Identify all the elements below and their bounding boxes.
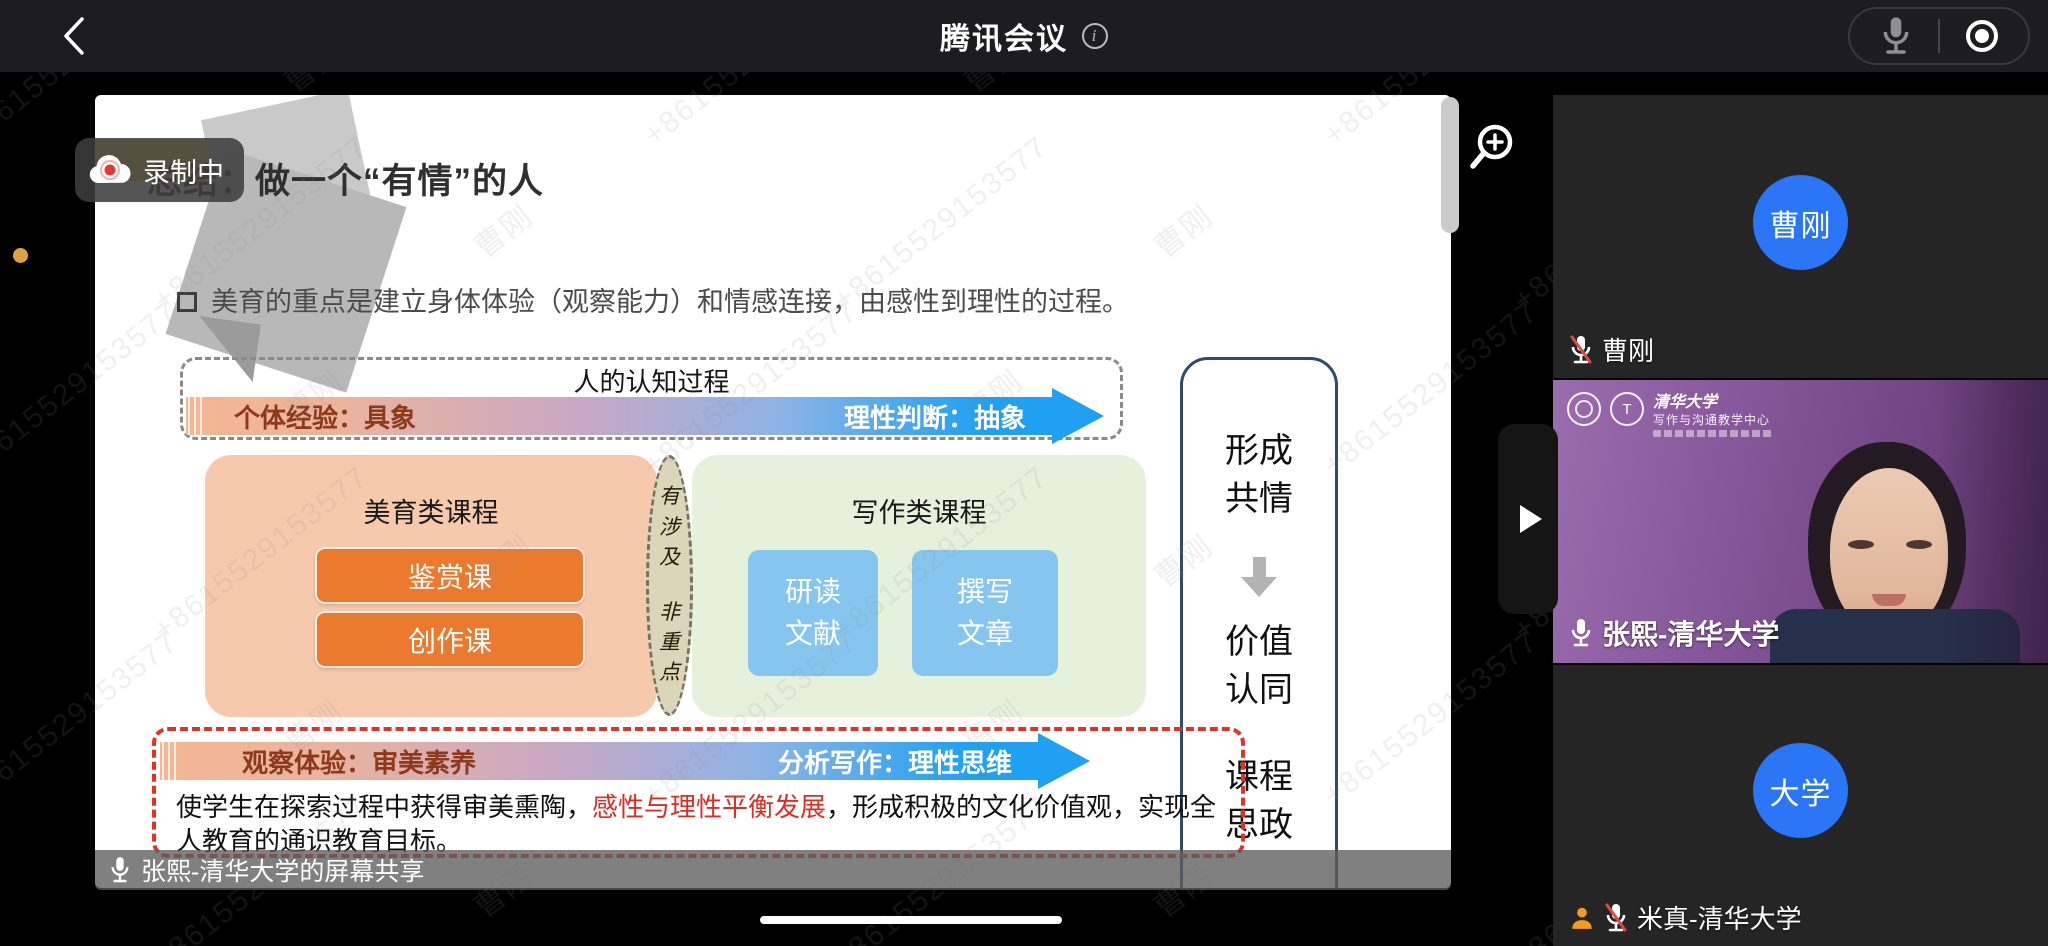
aesthetic-courses-panel: 美育类课程 鉴赏课 创作课	[205, 455, 657, 717]
oval-bottom-text: 非重点	[658, 598, 682, 689]
summary-right-label: 分析写作：理性思维	[778, 743, 1012, 780]
screen-share-label: 张熙-清华大学的屏幕共享	[141, 852, 424, 888]
muted-mic-icon	[1604, 903, 1628, 933]
play-arrow-icon	[1520, 505, 1542, 533]
outcome-values: 价值 认同	[1225, 619, 1293, 714]
participant-name: 张熙-清华大学	[1602, 613, 1779, 653]
top-bar: 腾讯会议 i	[0, 0, 2048, 72]
avatar: 大学	[1753, 743, 1848, 838]
slide-bullet: 美育的重点是建立身体体验（观察能力）和情感连接，由感性到理性的过程。	[177, 285, 1227, 320]
slide-scrollbar[interactable]	[1441, 97, 1459, 233]
pill-divider	[1938, 19, 1940, 53]
summary-gradient-arrow: 观察体验：审美素养 分析写作：理性思维	[160, 742, 1040, 780]
zoom-in-button[interactable]	[1464, 120, 1520, 176]
microphone-icon	[109, 856, 131, 884]
write-line2: 文章	[957, 613, 1013, 655]
outcome-empathy: 形成 共情	[1225, 428, 1293, 523]
write-article-box: 撰写 文章	[912, 550, 1058, 676]
record-button[interactable]	[1966, 20, 1998, 52]
summary-box: 观察体验：审美素养 分析写作：理性思维 使学生在探索过程中获得审美熏陶，感性与理…	[152, 727, 1245, 858]
cognition-left-label: 个体经验：具象	[186, 398, 416, 435]
tencent-meeting-app: 腾讯会议 i 总结：做一个“有情”的人	[0, 0, 2048, 946]
center-logo-icon: T	[1610, 392, 1644, 426]
participant-label: 曹刚	[1569, 331, 1654, 368]
participant-label: 米真-清华大学	[1569, 899, 1802, 936]
page-scroll-indicator[interactable]	[760, 916, 1062, 924]
meeting-title-group: 腾讯会议 i	[940, 14, 1108, 58]
shared-screen-slide[interactable]: 总结：做一个“有情”的人 美育的重点是建立身体体验（观察能力）和情感连接，由感性…	[95, 95, 1451, 888]
empathy-line2: 共情	[1225, 476, 1293, 524]
creation-course-box: 创作课	[315, 611, 585, 668]
participant-tile-caogang[interactable]: 曹刚 曹刚	[1553, 95, 2048, 378]
read-line2: 文献	[785, 613, 841, 655]
empathy-line1: 形成	[1225, 428, 1293, 476]
person-shoulders	[1770, 609, 2020, 663]
meeting-title: 腾讯会议	[940, 14, 1068, 58]
bullet-text: 美育的重点是建立身体体验（观察能力）和情感连接，由感性到理性的过程。	[211, 285, 1129, 320]
cognition-right-label: 理性判断：抽象	[844, 398, 1026, 435]
microphone-button[interactable]	[1880, 16, 1912, 56]
participant-label: 张熙-清华大学	[1569, 613, 1779, 653]
summary-pre: 使学生在探索过程中获得审美熏陶，	[176, 792, 592, 822]
aesthetic-title: 美育类课程	[205, 491, 657, 530]
screen-share-bar: 张熙-清华大学的屏幕共享	[95, 850, 1451, 890]
overlap-oval: 有涉及 非重点	[646, 455, 693, 716]
cognition-title: 人的认知过程	[183, 362, 1120, 399]
topbar-controls	[1848, 7, 2030, 65]
participant-name: 米真-清华大学	[1637, 899, 1802, 936]
university-watermark: T 清华大学 写作与沟通教学中心	[1567, 392, 1773, 437]
participant-tile-zhangxi-video[interactable]: T 清华大学 写作与沟通教学中心	[1553, 380, 2048, 663]
back-button[interactable]	[52, 14, 96, 58]
bullet-square-icon	[177, 292, 197, 312]
participant-tile-mizhen[interactable]: 大学	[1553, 665, 2048, 946]
info-icon[interactable]: i	[1082, 23, 1108, 49]
recording-label: 录制中	[143, 151, 224, 190]
avatar: 曹刚	[1753, 175, 1848, 270]
recording-badge[interactable]: 录制中	[75, 138, 244, 202]
muted-mic-icon	[1569, 335, 1593, 365]
oval-top-text: 有涉及	[658, 482, 682, 573]
logo-english-line	[1653, 430, 1773, 437]
cognition-gradient-arrow: 个体经验：具象 理性判断：抽象	[186, 397, 1054, 435]
magnifier-plus-icon	[1464, 120, 1520, 176]
read-line1: 研读	[785, 571, 841, 613]
sharing-person-icon	[1569, 904, 1595, 932]
writing-courses-panel: 写作类课程 研读 文献 撰写 文章	[692, 455, 1146, 717]
chevron-left-icon	[61, 15, 87, 57]
values-line1: 价值	[1225, 619, 1293, 667]
values-line2: 认同	[1225, 667, 1293, 715]
active-mic-icon	[1569, 618, 1593, 648]
appreciation-course-box: 鉴赏课	[315, 547, 585, 604]
summary-text: 使学生在探索过程中获得审美熏陶，感性与理性平衡发展，形成积极的文化价值观，实现全…	[176, 791, 1226, 859]
university-seal-icon	[1567, 392, 1601, 426]
sidebar-expand-button[interactable]	[1498, 424, 1558, 614]
logo-title: 清华大学	[1653, 393, 1773, 413]
participants-sidebar: 曹刚 曹刚	[1553, 72, 2048, 946]
annotation-dot	[13, 248, 28, 263]
read-literature-box: 研读 文献	[748, 550, 878, 676]
summary-highlight: 感性与理性平衡发展	[592, 792, 826, 822]
summary-left-label: 观察体验：审美素养	[160, 743, 476, 780]
meeting-stage: 总结：做一个“有情”的人 美育的重点是建立身体体验（观察能力）和情感连接，由感性…	[0, 72, 2048, 946]
cloud-record-icon	[87, 153, 133, 187]
cognition-process-box: 人的认知过程 个体经验：具象 理性判断：抽象	[180, 357, 1123, 440]
writing-title: 写作类课程	[692, 491, 1146, 530]
participant-name: 曹刚	[1602, 331, 1654, 368]
logo-subtitle: 写作与沟通教学中心	[1653, 413, 1773, 428]
write-line1: 撰写	[957, 571, 1013, 613]
